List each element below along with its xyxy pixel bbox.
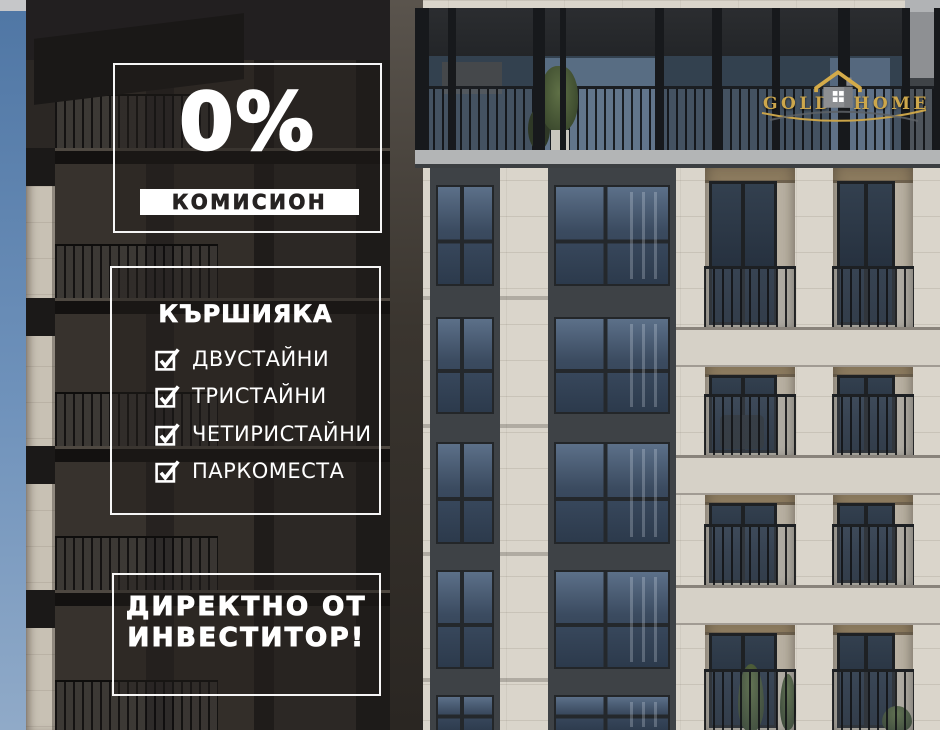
commission-bar: КОМИСИОН xyxy=(140,189,359,215)
balcony-plant xyxy=(540,66,578,132)
balcony-bay xyxy=(833,490,913,585)
district-box: КЪРШИЯКА ДВУСТАЙНИ ТРИСТАЙНИ xyxy=(110,266,381,515)
district-title: КЪРШИЯКА xyxy=(112,300,379,328)
balcony-railing xyxy=(704,524,796,585)
floor-slab xyxy=(415,150,940,168)
balcony-railing xyxy=(704,669,796,730)
curtain xyxy=(621,192,664,279)
penthouse-post xyxy=(448,8,456,152)
window xyxy=(554,695,670,730)
window xyxy=(436,695,494,730)
balcony-bay xyxy=(833,362,913,455)
balcony-railing xyxy=(832,394,914,455)
amenity-item: ТРИСТАЙНИ xyxy=(154,378,372,416)
balcony-bay xyxy=(705,362,795,455)
balcony-railing xyxy=(704,266,796,327)
balcony-railing xyxy=(832,524,914,585)
checkbox-checked-icon xyxy=(154,458,180,484)
investor-line2: ИНВЕСТИТОР! xyxy=(114,623,379,654)
curtain xyxy=(621,324,664,407)
penthouse-post xyxy=(712,8,722,152)
amenity-item: ЧЕТИРИСТАЙНИ xyxy=(154,415,372,453)
window-column xyxy=(548,168,676,730)
curtain xyxy=(621,449,664,537)
amenity-item: ПАРКОМЕСТА xyxy=(154,453,372,491)
penthouse-post xyxy=(560,8,566,152)
balcony-railing xyxy=(832,669,914,730)
pillar-slab xyxy=(26,446,55,484)
investor-box: ДИРЕКТНО ОТ ИНВЕСТИТОР! xyxy=(112,573,381,696)
balcony-railing xyxy=(704,394,796,455)
pillar-slab xyxy=(26,148,55,186)
amenity-label: ДВУСТАЙНИ xyxy=(192,347,329,371)
penthouse-post xyxy=(415,8,429,152)
commission-box: 0% КОМИСИОН xyxy=(113,63,382,233)
curtain xyxy=(621,577,664,662)
commission-label: КОМИСИОН xyxy=(172,190,327,214)
floor-slab xyxy=(676,455,940,495)
balcony-bay xyxy=(705,168,795,327)
pillar-slab xyxy=(26,298,55,336)
checkbox-checked-icon xyxy=(154,346,180,372)
balcony-railing xyxy=(832,266,914,327)
amenity-label: ЧЕТИРИСТАЙНИ xyxy=(192,422,372,446)
ad-poster: 0% КОМИСИОН КЪРШИЯКА ДВУСТАЙНИ ТРИСТАЙНИ xyxy=(0,0,940,730)
sky-strip xyxy=(0,0,26,730)
window xyxy=(554,317,670,414)
window xyxy=(554,185,670,286)
floor-slab xyxy=(676,327,940,367)
checkbox-checked-icon xyxy=(154,421,180,447)
amenity-label: ТРИСТАЙНИ xyxy=(192,384,327,408)
penthouse-post xyxy=(533,8,545,152)
amenity-label: ПАРКОМЕСТА xyxy=(192,459,345,483)
brand-logo: GOLD HOME xyxy=(750,68,940,130)
window-column xyxy=(430,168,500,730)
investor-line1: ДИРЕКТНО ОТ xyxy=(114,592,379,623)
balcony-bay xyxy=(705,490,795,585)
checkbox-checked-icon xyxy=(154,383,180,409)
window xyxy=(436,185,494,286)
window xyxy=(554,570,670,669)
logo-swoosh-icon xyxy=(758,108,930,126)
pillar-slab xyxy=(26,590,55,628)
stone-pillar xyxy=(26,150,55,730)
amenity-item: ДВУСТАЙНИ xyxy=(154,340,372,378)
amenity-list: ДВУСТАЙНИ ТРИСТАЙНИ ЧЕТИРИСТАЙНИ xyxy=(154,340,372,490)
window xyxy=(554,442,670,544)
balcony-bay xyxy=(833,168,913,327)
percent-text: 0% xyxy=(115,67,380,179)
penthouse-post xyxy=(655,8,664,152)
balcony-bay xyxy=(705,620,795,730)
window xyxy=(436,570,494,669)
curtain xyxy=(621,702,664,727)
balcony-bay xyxy=(833,620,913,730)
floor-slab xyxy=(676,585,940,625)
window xyxy=(436,317,494,414)
window xyxy=(436,442,494,544)
